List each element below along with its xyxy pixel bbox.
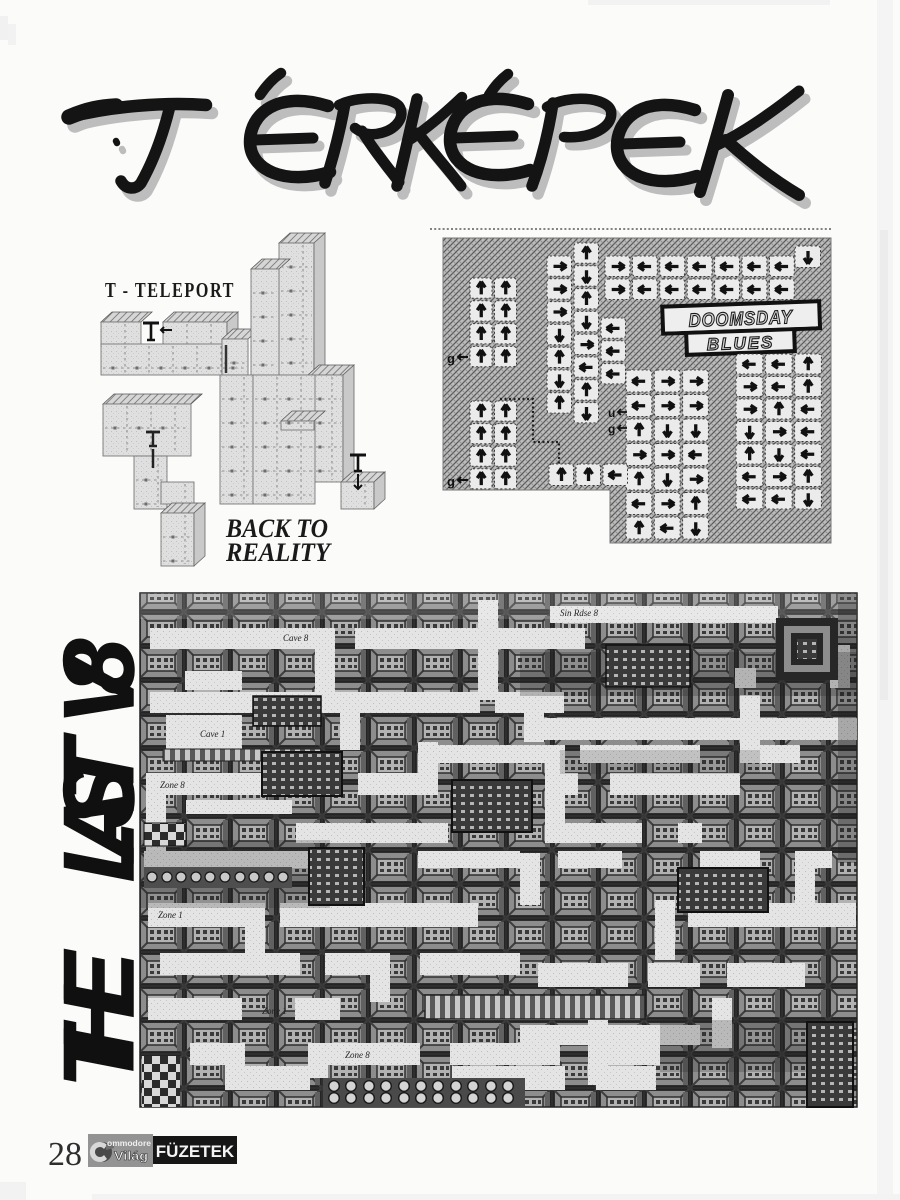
svg-text:THE: THE — [43, 949, 154, 1088]
svg-text:DOOMSDAY: DOOMSDAY — [688, 307, 794, 332]
svg-text:Zone 1: Zone 1 — [262, 1006, 287, 1016]
svg-text:Cave 8: Cave 8 — [283, 633, 309, 643]
svg-text:REALITY: REALITY — [225, 538, 332, 567]
svg-text:Zone 1: Zone 1 — [158, 910, 183, 920]
svg-text:V8: V8 — [43, 639, 154, 725]
svg-text:T - TELEPORT: T - TELEPORT — [105, 278, 235, 302]
svg-text:u: u — [608, 406, 615, 420]
svg-text:Zone 8: Zone 8 — [160, 780, 185, 790]
svg-text:28: 28 — [48, 1136, 82, 1173]
svg-text:ommodore: ommodore — [107, 1139, 152, 1148]
svg-text:LAST: LAST — [43, 732, 154, 882]
svg-text:Világ: Világ — [114, 1149, 148, 1163]
svg-text:Zone 8: Zone 8 — [345, 1050, 370, 1060]
svg-text:g: g — [447, 474, 455, 489]
svg-text:Sin Rdse 8: Sin Rdse 8 — [560, 608, 598, 618]
svg-text:g: g — [608, 422, 615, 436]
svg-text:BLUES: BLUES — [706, 333, 774, 354]
svg-text:Cave 1: Cave 1 — [200, 729, 225, 739]
svg-text:g: g — [447, 351, 455, 366]
svg-text:FÜZETEK: FÜZETEK — [156, 1142, 235, 1161]
